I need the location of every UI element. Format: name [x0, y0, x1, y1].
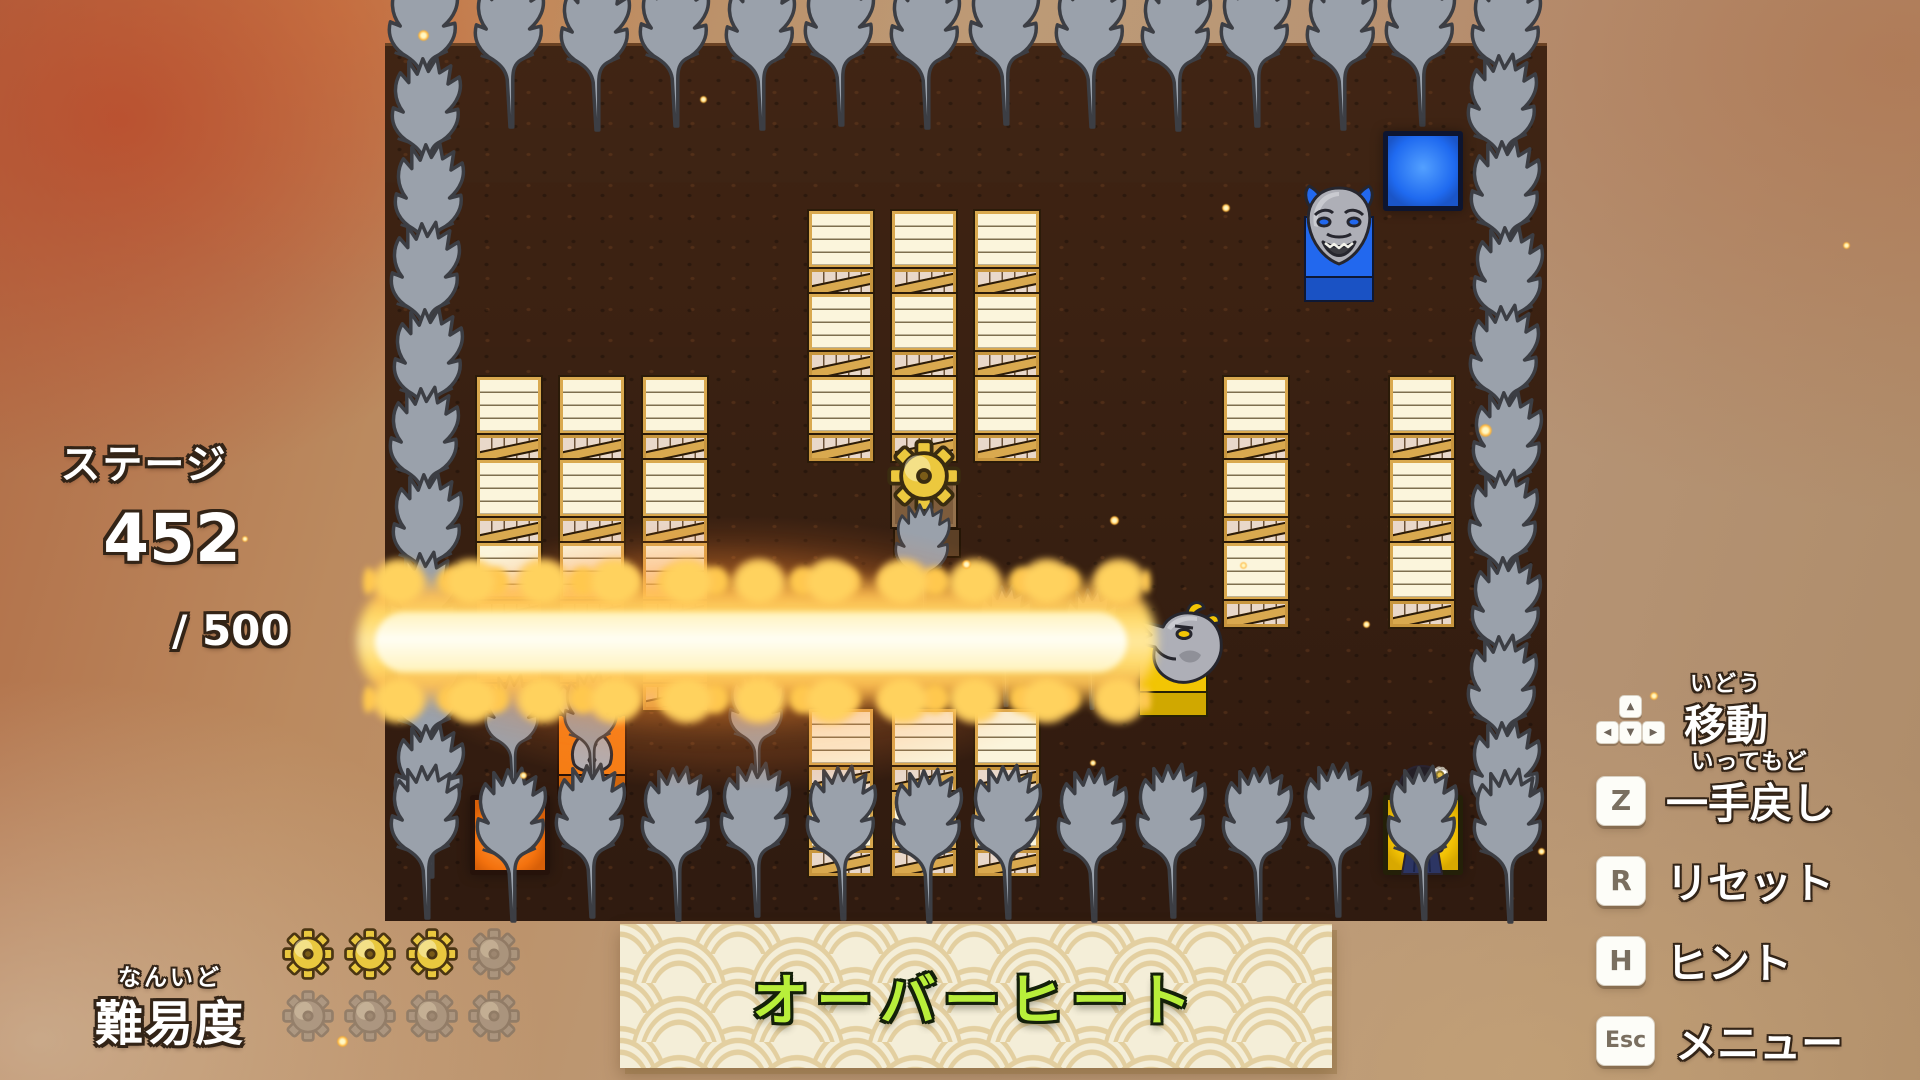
crate: [1390, 543, 1454, 627]
game-screen: ステージ 452 / 500 なんいど 難易度 オーバーヒート ▲ ◀ ▼ ▶ …: [0, 0, 1920, 1080]
dead-tree: [554, 0, 638, 132]
difficulty-gear-empty-icon: [468, 990, 520, 1042]
arrow-left-key[interactable]: ◀: [1596, 721, 1619, 744]
ember-particle: [418, 30, 429, 41]
dead-tree: [1464, 137, 1548, 295]
crate: [975, 294, 1039, 378]
dragon-statue-orange: [550, 680, 634, 780]
dead-tree: [387, 305, 471, 463]
arrow-keys-icon[interactable]: ▲ ◀ ▼ ▶: [1596, 695, 1664, 751]
difficulty-gears-row-2: [282, 990, 520, 1042]
arrow-up-key[interactable]: ▲: [1619, 695, 1642, 718]
dead-tree: [714, 760, 798, 918]
crate: [643, 626, 707, 710]
crate: [1390, 460, 1454, 544]
control-reset[interactable]: R リセット: [1596, 850, 1834, 911]
difficulty-gear-filled-icon: [406, 928, 458, 980]
crate: [643, 377, 707, 461]
goal-tile-yellow: [1383, 795, 1463, 875]
statue-tile-yellow: [1140, 633, 1206, 693]
game-board: [385, 43, 1547, 921]
difficulty-gears-row-1: [282, 928, 520, 980]
difficulty-gear-filled-icon: [344, 928, 396, 980]
crate: [1224, 460, 1288, 544]
stage-total: / 500: [172, 606, 290, 655]
dragon-statue-yellow: [1131, 597, 1227, 693]
dead-tree: [1467, 766, 1551, 924]
dead-tree: [1466, 388, 1550, 546]
dead-tree: [1216, 764, 1300, 922]
crate: [560, 626, 624, 710]
crate: [809, 294, 873, 378]
difficulty-gear-empty-icon: [282, 990, 334, 1042]
goal-tile-blue: [1383, 131, 1463, 211]
dead-tree: [388, 721, 472, 879]
difficulty-gear-empty-icon: [468, 928, 520, 980]
crate: [643, 460, 707, 544]
statue-tile-blue: [1306, 218, 1372, 278]
menu-label: メニュー: [1675, 1010, 1843, 1071]
crate: [892, 211, 956, 295]
dead-tree: [886, 766, 970, 924]
z-key[interactable]: Z: [1596, 776, 1646, 826]
dead-tree: [384, 219, 468, 377]
dead-tree: [1214, 0, 1298, 128]
dead-tree: [386, 470, 470, 628]
crate: [477, 377, 541, 461]
player-character: [1390, 760, 1454, 882]
dead-tree: [884, 0, 968, 130]
undo-furigana: いってもど: [1666, 744, 1834, 776]
control-undo[interactable]: Z いってもど 一手戻し: [1596, 770, 1834, 831]
difficulty-gear-filled-icon: [282, 928, 334, 980]
crate: [1390, 377, 1454, 461]
crate: [643, 543, 707, 627]
move-furigana: いどう: [1684, 666, 1768, 698]
dead-tree: [1465, 0, 1549, 130]
dead-tree: [1135, 0, 1219, 132]
ember-particle: [1843, 242, 1850, 249]
dead-tree: [1295, 760, 1379, 918]
crate: [477, 543, 541, 627]
dead-tree: [1464, 718, 1548, 876]
statue-tile-orange: [559, 716, 625, 776]
dead-tree: [972, 583, 1038, 707]
fire-beam: [357, 566, 1157, 716]
crate: [809, 792, 873, 876]
dead-tree: [383, 384, 467, 542]
dead-tree: [965, 762, 1049, 920]
dead-tree: [1462, 467, 1546, 625]
control-hint[interactable]: H ヒント: [1596, 930, 1792, 991]
crate: [975, 709, 1039, 793]
stage-title-banner: オーバーヒート: [620, 924, 1332, 1068]
dead-tree: [1300, 0, 1384, 131]
crate: [809, 709, 873, 793]
crate: [892, 377, 956, 461]
difficulty-gear-empty-icon: [344, 990, 396, 1042]
control-menu[interactable]: Esc メニュー: [1596, 1010, 1843, 1071]
crate: [809, 211, 873, 295]
dead-tree: [1467, 223, 1551, 381]
dead-tree: [388, 140, 472, 298]
crate: [892, 709, 956, 793]
dead-tree: [633, 0, 717, 128]
dead-tree: [1461, 51, 1545, 209]
dead-tree: [559, 668, 625, 792]
dead-tree: [1461, 632, 1545, 790]
crate: [1224, 543, 1288, 627]
dead-tree: [468, 0, 552, 129]
dead-tree: [724, 667, 790, 791]
dead-tree: [1049, 0, 1133, 129]
dead-tree: [635, 764, 719, 922]
dead-tree: [1051, 765, 1135, 923]
dead-tree: [800, 763, 884, 921]
undo-label: いってもど 一手戻し: [1666, 770, 1834, 831]
dead-tree: [382, 549, 466, 707]
crate: [477, 460, 541, 544]
dead-tree: [890, 501, 956, 625]
stage-number: 452: [62, 500, 282, 577]
dead-tree: [549, 761, 633, 919]
reset-label: リセット: [1666, 850, 1834, 911]
dead-tree: [470, 765, 554, 923]
dead-tree: [963, 0, 1047, 126]
arrow-right-key[interactable]: ▶: [1642, 721, 1665, 744]
crate: [975, 211, 1039, 295]
dead-tree: [1130, 761, 1214, 919]
esc-key[interactable]: Esc: [1596, 1016, 1655, 1066]
stage-label: ステージ: [44, 432, 244, 490]
dragon-statue-blue: [1297, 182, 1381, 282]
dead-tree: [385, 635, 469, 793]
crate: [560, 377, 624, 461]
dead-tree: [382, 0, 466, 126]
gear-icon: [887, 439, 961, 513]
dead-tree: [1379, 0, 1463, 127]
dead-tree: [1465, 553, 1549, 711]
stage-title: オーバーヒート: [752, 956, 1199, 1037]
dead-tree: [385, 54, 469, 212]
dead-tree: [719, 0, 803, 131]
h-key[interactable]: H: [1596, 936, 1646, 986]
goal-tile-orange: [470, 795, 550, 875]
hint-label: ヒント: [1666, 930, 1792, 991]
dead-tree: [798, 0, 882, 127]
dead-tree: [1058, 586, 1124, 710]
fire-glow-overlay: [340, 474, 1230, 819]
dead-tree: [1381, 763, 1465, 921]
crate: [892, 294, 956, 378]
arrow-down-key[interactable]: ▼: [1619, 721, 1642, 744]
crate: [975, 377, 1039, 461]
dead-tree: [1463, 302, 1547, 460]
crate: [477, 626, 541, 710]
crate: [560, 543, 624, 627]
crate: [892, 792, 956, 876]
r-key[interactable]: R: [1596, 856, 1646, 906]
dead-tree: [480, 672, 546, 796]
difficulty-label: 難易度: [60, 984, 280, 1054]
crate: [560, 460, 624, 544]
crate: [1224, 377, 1288, 461]
dead-tree: [384, 762, 468, 920]
crate: [809, 377, 873, 461]
crate: [975, 792, 1039, 876]
difficulty-gear-empty-icon: [406, 990, 458, 1042]
gear-pedestal: [892, 469, 956, 527]
